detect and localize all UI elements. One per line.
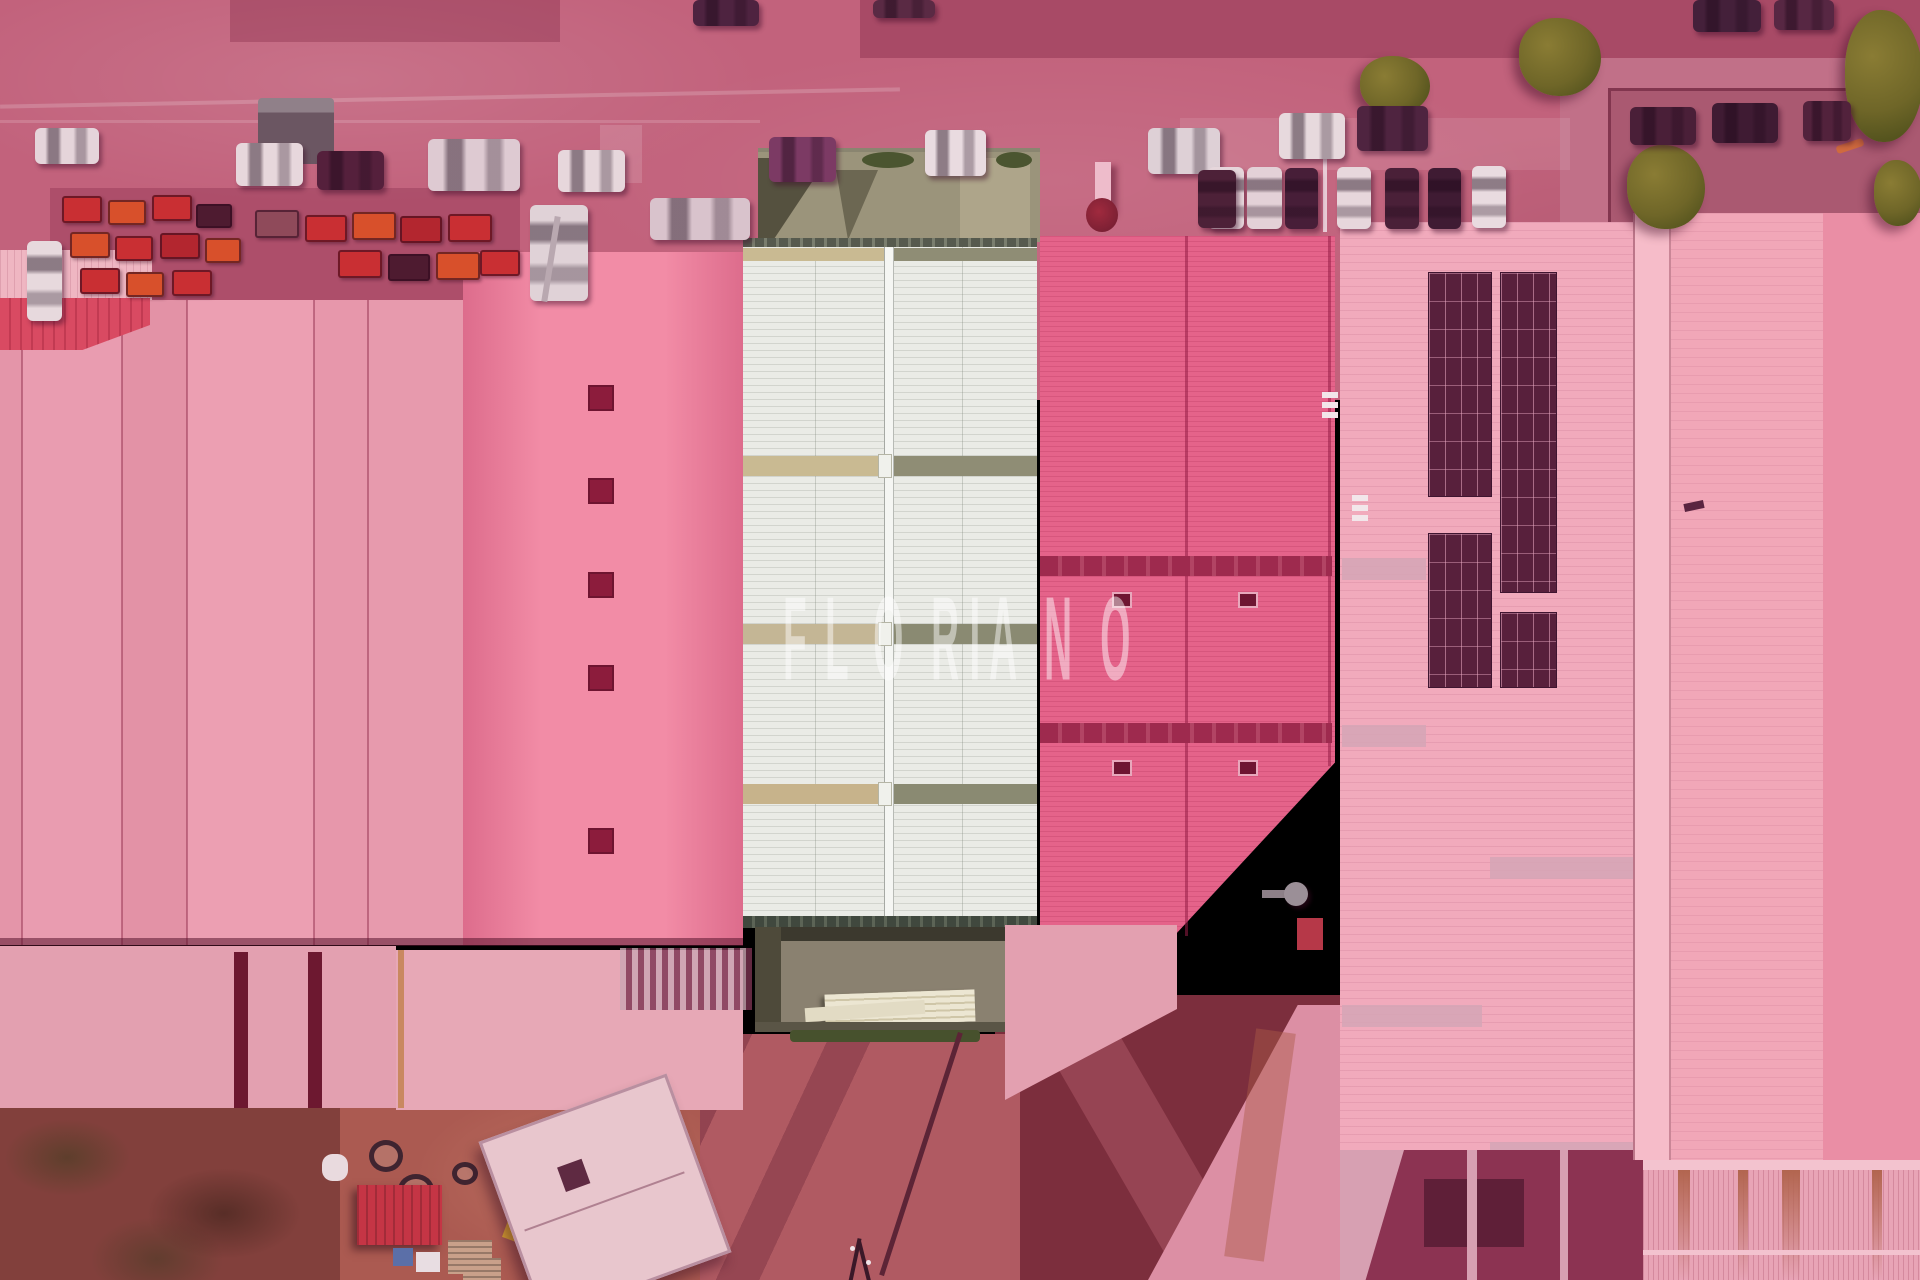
ridge-tab bbox=[878, 454, 892, 478]
skylight-stripe bbox=[892, 784, 1037, 804]
car bbox=[1198, 170, 1236, 228]
red-bush bbox=[1086, 198, 1118, 232]
roof-vent bbox=[1112, 760, 1132, 776]
car bbox=[1712, 103, 1778, 143]
rust-streak bbox=[1738, 1170, 1748, 1280]
solar-panel-array bbox=[1428, 272, 1492, 497]
roof-walkway bbox=[1490, 857, 1638, 879]
crane-light bbox=[866, 1260, 871, 1265]
roof-eave bbox=[0, 938, 743, 946]
tractor-machine bbox=[172, 270, 212, 296]
tractor-machine bbox=[196, 204, 232, 228]
car bbox=[428, 139, 520, 191]
skylight-stripe bbox=[743, 456, 884, 476]
tree bbox=[1845, 10, 1920, 142]
bay-post bbox=[1560, 1150, 1568, 1280]
road-dark-patch bbox=[860, 0, 1920, 58]
roof-vent bbox=[588, 828, 614, 854]
watermark-letter: F bbox=[783, 569, 807, 710]
roof-walkway bbox=[1040, 723, 1332, 743]
white-crate bbox=[416, 1252, 440, 1272]
car bbox=[650, 198, 750, 240]
tractor-machine bbox=[480, 250, 520, 276]
car bbox=[1428, 168, 1461, 229]
tractor-machine bbox=[436, 252, 480, 280]
tractor-machine bbox=[70, 232, 110, 258]
red-container bbox=[357, 1185, 442, 1245]
tractor-machine bbox=[108, 200, 146, 225]
tractor-machine bbox=[448, 214, 492, 242]
car bbox=[1630, 107, 1696, 145]
roof-vent bbox=[588, 385, 614, 411]
tractor-machine bbox=[338, 250, 382, 278]
car bbox=[317, 151, 384, 190]
bay-post bbox=[1467, 1150, 1477, 1280]
tractor-machine bbox=[388, 254, 430, 281]
tractor-machine bbox=[205, 238, 241, 263]
car bbox=[769, 137, 836, 182]
aerial-photo-scene: FLORIANO bbox=[0, 0, 1920, 1280]
red-rooftop-box bbox=[1297, 918, 1323, 950]
roof-ladder-marks bbox=[1352, 495, 1368, 501]
car bbox=[558, 150, 625, 192]
chimney bbox=[1284, 882, 1308, 906]
annex-rust-line bbox=[398, 950, 404, 1108]
car bbox=[1472, 166, 1506, 228]
watermark-letter: I bbox=[969, 569, 980, 710]
skylight-stripe bbox=[743, 248, 884, 261]
watermark-letter: A bbox=[989, 569, 1017, 710]
car bbox=[1774, 0, 1834, 30]
rust-streak bbox=[1872, 1170, 1882, 1280]
watermark-letter: O bbox=[873, 569, 903, 710]
rust-streak bbox=[1678, 1170, 1690, 1280]
rust-streak bbox=[1782, 1170, 1800, 1280]
tractor-machine bbox=[126, 272, 164, 297]
annex-slot bbox=[308, 952, 322, 1108]
car bbox=[873, 0, 935, 18]
white-sack bbox=[322, 1154, 348, 1181]
roof-ladder-marks bbox=[1322, 392, 1338, 398]
courtyard-shadow bbox=[755, 927, 781, 1032]
pipe-rack bbox=[620, 948, 752, 1010]
tree bbox=[1519, 18, 1601, 96]
roof-eave bbox=[1643, 1160, 1920, 1170]
tractor-machine bbox=[352, 212, 396, 240]
roof-vent bbox=[588, 478, 614, 504]
car bbox=[236, 143, 303, 186]
parking-line bbox=[0, 120, 760, 123]
car bbox=[1148, 128, 1220, 174]
roof-seam bbox=[524, 1171, 684, 1231]
rooftop-pallet bbox=[557, 1159, 590, 1192]
roof-edge-serration bbox=[743, 238, 1037, 247]
tire bbox=[369, 1140, 403, 1172]
tractor-machine bbox=[160, 233, 200, 259]
annex-roof bbox=[0, 946, 396, 1108]
car bbox=[1247, 167, 1282, 229]
tractor-machine bbox=[80, 268, 120, 294]
tractor-machine bbox=[115, 236, 153, 261]
car bbox=[1693, 0, 1761, 32]
watermark-letter: R bbox=[931, 569, 959, 710]
tractor-machine bbox=[62, 196, 102, 223]
vegetation-strip bbox=[790, 1030, 980, 1042]
car bbox=[35, 128, 99, 164]
car bbox=[1337, 167, 1371, 229]
pallet-stack bbox=[463, 1258, 501, 1280]
tractor-machine bbox=[305, 215, 347, 242]
tractor-machine bbox=[152, 195, 192, 221]
car bbox=[1285, 168, 1318, 229]
roof-vent bbox=[1238, 760, 1258, 776]
watermark-letter: L bbox=[825, 569, 849, 710]
tree bbox=[1874, 160, 1920, 226]
grass-tuft bbox=[862, 152, 914, 168]
skylight-stripe bbox=[892, 456, 1037, 476]
skylight-stripe bbox=[892, 248, 1037, 261]
blue-crate bbox=[393, 1248, 413, 1266]
watermark-letter: N bbox=[1044, 569, 1072, 710]
car bbox=[1803, 101, 1851, 141]
annex-slot bbox=[234, 952, 248, 1108]
car bbox=[925, 130, 986, 176]
tractor-machine bbox=[400, 216, 442, 243]
tractor-machine bbox=[255, 210, 299, 238]
roof-walkway bbox=[1342, 1005, 1482, 1027]
roof-rail bbox=[1643, 1250, 1920, 1255]
crane-light bbox=[850, 1246, 855, 1251]
grass-tuft bbox=[996, 152, 1032, 168]
watermark-text: FLORIANO bbox=[0, 572, 1920, 708]
car bbox=[1357, 106, 1428, 151]
car bbox=[1279, 113, 1345, 159]
car bbox=[27, 241, 62, 321]
skylight-stripe bbox=[743, 784, 884, 804]
car bbox=[1385, 168, 1419, 229]
car bbox=[693, 0, 759, 26]
tree bbox=[1627, 145, 1705, 229]
watermark-letter: O bbox=[1100, 569, 1130, 710]
roof-walkway bbox=[1342, 725, 1426, 747]
ridge-tab bbox=[878, 782, 892, 806]
courtyard-shadow bbox=[755, 927, 1030, 941]
solar-panel-array bbox=[1500, 272, 1557, 593]
tire bbox=[452, 1162, 478, 1185]
road-dark-patch bbox=[230, 0, 560, 42]
